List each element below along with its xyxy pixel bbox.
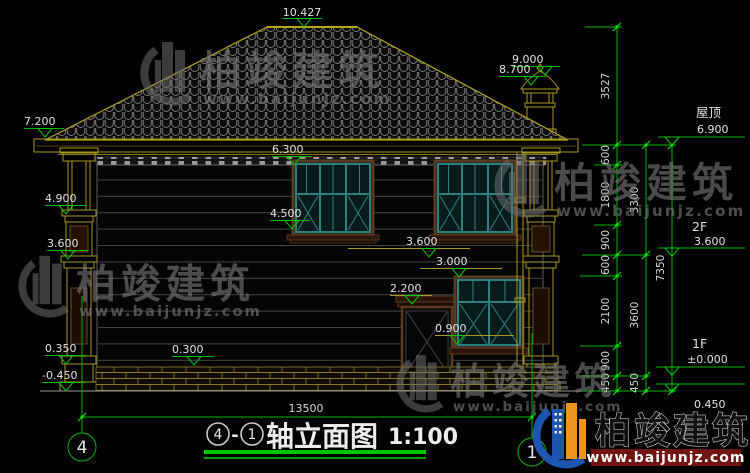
dim-b-3600: 3600 [629,302,641,329]
svg-text:2.200: 2.200 [390,282,422,295]
watermark-right [498,154,745,220]
drawing-title: 4 - 1 轴立面图 1:100 [204,420,458,459]
title-name: 轴立面图 [266,420,378,453]
watermark-bottom [400,355,622,415]
window-2f-left [287,161,379,243]
title-underline-thin [204,457,426,459]
title-scale: 1:100 [388,425,458,450]
svg-text:8.700: 8.700 [499,63,531,76]
svg-text:4.900: 4.900 [45,192,77,205]
svg-text:3.600: 3.600 [47,237,79,250]
cad-elevation-drawing: 柏竣建筑 www.baijunjz.com [0,0,750,473]
below-elev: 0.450 [694,398,726,411]
mark-col-ring: 4.900 [45,192,86,214]
brand-website: www.baijunjz.com [587,450,746,466]
svg-text:0.300: 0.300 [172,343,204,356]
svg-text:3.000: 3.000 [436,255,468,268]
title-axis-left: 4 [214,427,223,443]
mark-ridge: 10.427 [282,6,322,27]
brand-logo: 柏竣建筑 www.baijunjz.com [537,403,750,466]
svg-text:-0.450: -0.450 [42,369,77,382]
mark-plinth: 0.350 [45,342,86,364]
roof-elev: 6.900 [697,123,729,136]
axis-left-number: 4 [77,438,88,458]
floor-level-marks: 屋顶 6.900 2F 3.600 1F ±0.000 0.450 [656,105,745,411]
svg-text:3.600: 3.600 [406,235,438,248]
dim-b-450: 450 [629,373,641,393]
watermark-top [144,42,391,108]
svg-text:7.200: 7.200 [24,115,56,128]
dim-a-900a: 900 [600,230,612,250]
dim-c-7350: 7350 [655,255,667,282]
roof-label: 屋顶 [696,105,722,120]
title-underline-thick [204,450,426,454]
svg-text:4.500: 4.500 [270,207,302,220]
f2-label: 2F [692,219,707,234]
svg-text:0.350: 0.350 [45,342,77,355]
dim-a-600b: 600 [600,255,612,275]
brand-company: 柏竣建筑 [595,411,750,452]
drawing-canvas: 柏竣建筑 www.baijunjz.com [0,0,750,473]
f1-elev: ±0.000 [687,353,728,366]
mark-ground: -0.450 [42,369,86,391]
svg-text:10.427: 10.427 [283,6,322,19]
title-dash: - [231,425,238,446]
dim-a-2100: 2100 [600,298,612,325]
dim-a-3527: 3527 [600,73,612,100]
window-1f [450,277,528,354]
svg-text:0.900: 0.900 [435,322,467,335]
total-width-dim: 13500 [289,402,324,415]
f2-elev: 3.600 [694,235,726,248]
svg-text:6.300: 6.300 [272,143,304,156]
title-axis-right: 1 [248,427,257,443]
watermark-left [22,256,262,320]
f1-label: 1F [692,336,707,351]
